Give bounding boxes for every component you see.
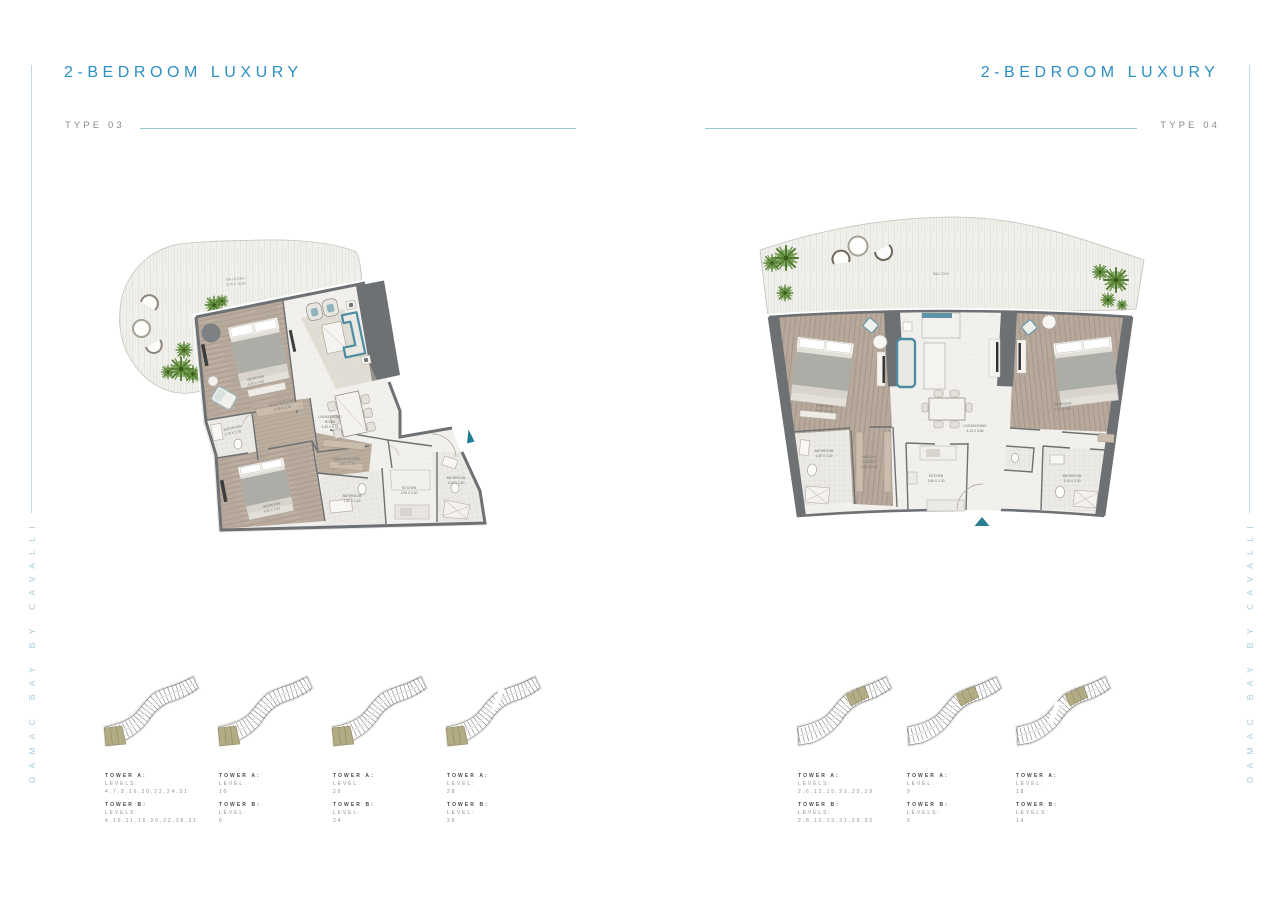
svg-text:3.19 X 2.80: 3.19 X 2.80 bbox=[448, 481, 465, 485]
svg-text:BATHROOM: BATHROOM bbox=[1063, 474, 1082, 478]
svg-text:1.68 X 3.33: 1.68 X 3.33 bbox=[816, 454, 833, 458]
svg-text:ROOM: ROOM bbox=[325, 420, 336, 424]
svg-text:CLOSET: CLOSET bbox=[862, 460, 875, 464]
svg-text:KITCHEN: KITCHEN bbox=[929, 474, 944, 478]
svg-text:4.30 X 6.32: 4.30 X 6.32 bbox=[322, 425, 339, 429]
svg-text:4.10 X 3.85: 4.10 X 3.85 bbox=[967, 429, 984, 433]
svg-text:BATHROOM: BATHROOM bbox=[815, 449, 834, 453]
svg-text:2.06 X 2.40: 2.06 X 2.40 bbox=[401, 491, 418, 495]
svg-text:3.15 X 2.30: 3.15 X 2.30 bbox=[1064, 479, 1081, 483]
svg-text:2.36 X 1.92: 2.36 X 1.92 bbox=[344, 499, 361, 503]
svg-text:3.48 X 2.30: 3.48 X 2.30 bbox=[928, 479, 945, 483]
svg-text:BALCONY: BALCONY bbox=[933, 272, 950, 276]
svg-text:BATHROOM: BATHROOM bbox=[447, 476, 466, 480]
svg-text:LIVING/DINING: LIVING/DINING bbox=[318, 415, 342, 419]
svg-text:BATHROOM: BATHROOM bbox=[343, 494, 362, 498]
svg-text:1.55 X 2.32: 1.55 X 2.32 bbox=[861, 465, 878, 469]
svg-text:WALK IN CLOSET: WALK IN CLOSET bbox=[333, 457, 361, 461]
svg-text:LIVING/DINING: LIVING/DINING bbox=[963, 424, 987, 428]
svg-text:KITCHEN: KITCHEN bbox=[402, 486, 417, 490]
svg-text:2.05 X 1.44: 2.05 X 1.44 bbox=[339, 462, 356, 466]
svg-text:WALK IN: WALK IN bbox=[862, 455, 876, 459]
